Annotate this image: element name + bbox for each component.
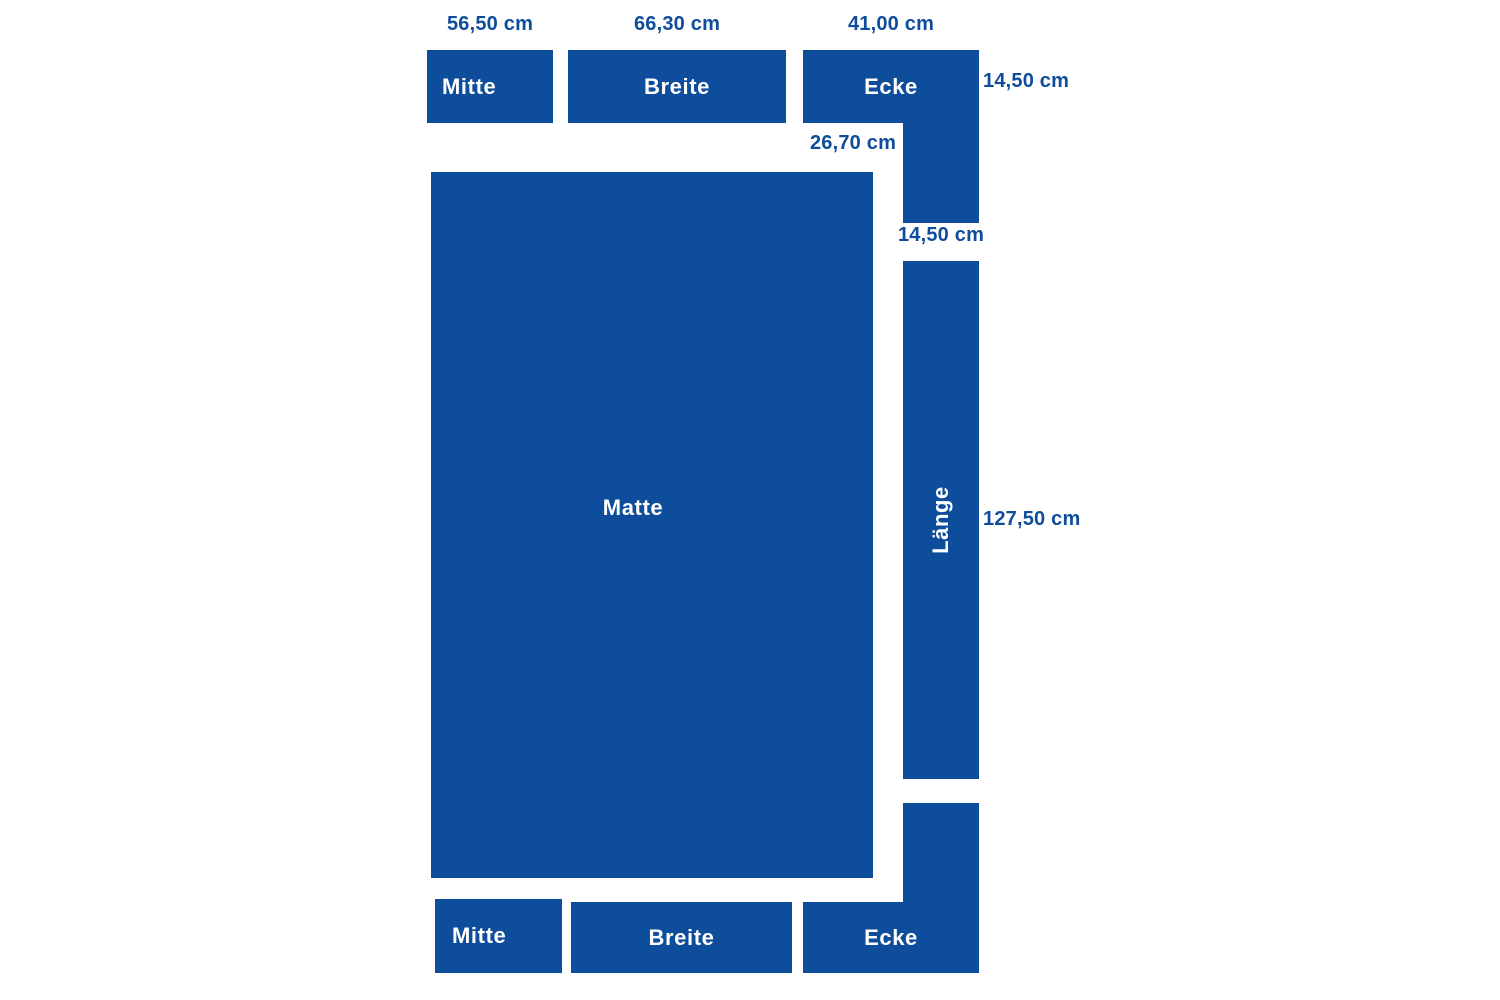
piece-mitte-top-label: Mitte bbox=[442, 74, 496, 100]
piece-mitte-bottom-label: Mitte bbox=[452, 923, 506, 949]
ecke-top-vertical-leg bbox=[903, 123, 979, 223]
dimension-ecke-height: 14,50 cm bbox=[983, 70, 1103, 92]
ecke-bottom-label-zone: Ecke bbox=[803, 902, 979, 973]
piece-laenge-label: Länge bbox=[928, 486, 954, 554]
dimension-ecke-width: 41,00 cm bbox=[803, 13, 979, 35]
mat-dimensions-diagram: 56,50 cm 66,30 cm 41,00 cm Mitte Breite … bbox=[0, 0, 1500, 1000]
dimension-laenge-length: 127,50 cm bbox=[983, 508, 1113, 530]
piece-breite-top-label: Breite bbox=[644, 74, 710, 100]
piece-breite-bottom-label: Breite bbox=[649, 925, 715, 951]
piece-mitte-bottom: Mitte bbox=[435, 899, 562, 973]
piece-ecke-bottom-label: Ecke bbox=[864, 925, 918, 951]
ecke-bottom-vertical-leg bbox=[903, 803, 979, 902]
piece-ecke-bottom: Ecke bbox=[803, 803, 979, 973]
piece-breite-bottom: Breite bbox=[571, 902, 792, 973]
ecke-top-label-zone: Ecke bbox=[803, 50, 979, 123]
piece-matte-label: Matte bbox=[603, 495, 663, 521]
piece-breite-top: Breite bbox=[568, 50, 786, 123]
dimension-ecke-notch: 26,70 cm bbox=[803, 132, 903, 154]
dimension-mitte-width: 56,50 cm bbox=[427, 13, 553, 35]
piece-ecke-top-label: Ecke bbox=[864, 74, 918, 100]
piece-laenge: Länge bbox=[903, 261, 979, 779]
piece-matte: Matte bbox=[431, 172, 873, 878]
dimension-breite-width: 66,30 cm bbox=[568, 13, 786, 35]
dimension-ecke-leg-width: 14,50 cm bbox=[891, 224, 991, 246]
piece-mitte-top: Mitte bbox=[427, 50, 553, 123]
